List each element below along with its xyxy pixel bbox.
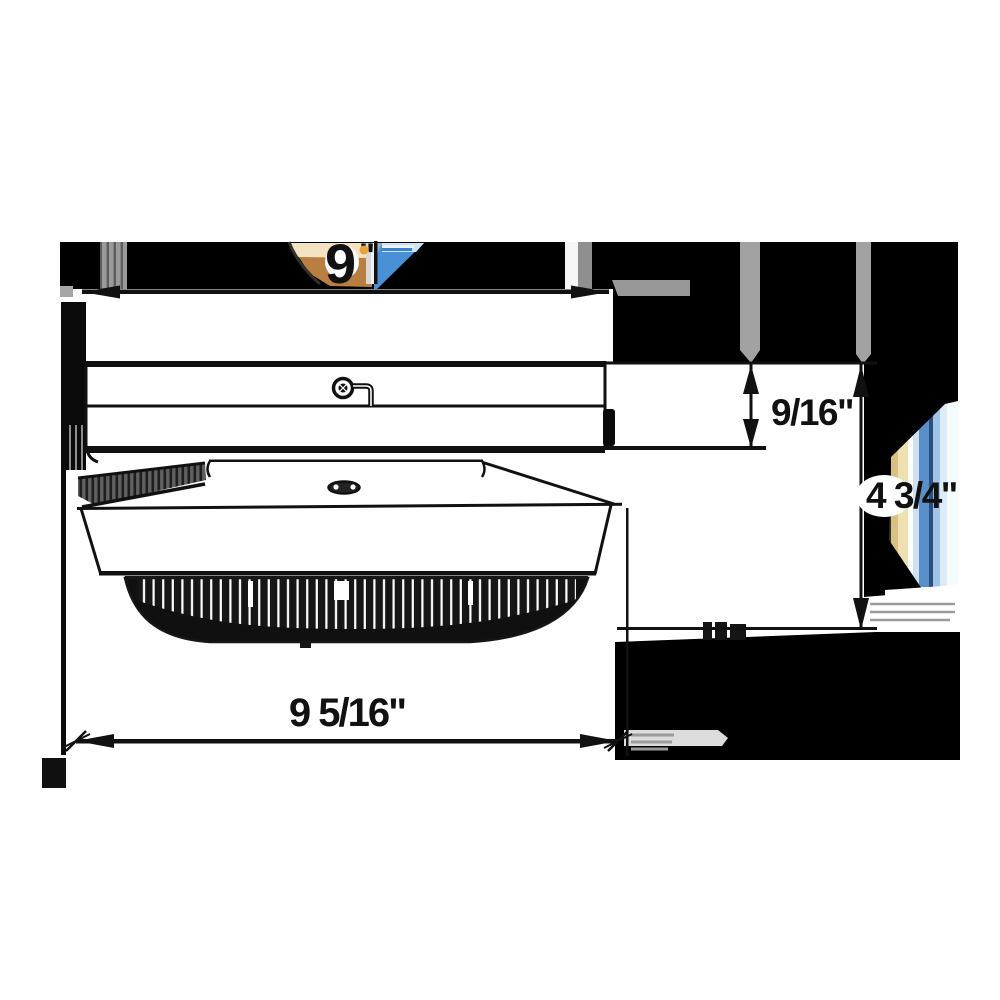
svg-text:": " [359,237,375,275]
svg-text:9: 9 [325,232,356,295]
svg-text:9/16": 9/16" [771,392,853,433]
svg-text:9 5/16": 9 5/16" [289,691,405,735]
svg-text:4 3/4": 4 3/4" [866,475,957,516]
